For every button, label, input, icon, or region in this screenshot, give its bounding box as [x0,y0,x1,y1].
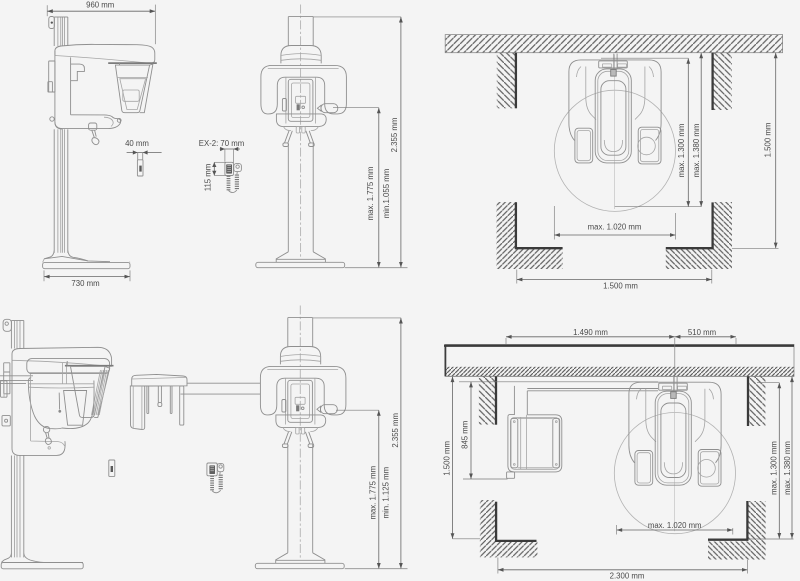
svg-text:max. 1.300 mm: max. 1.300 mm [677,124,686,178]
svg-text:115 mm: 115 mm [203,164,212,192]
svg-text:40 mm: 40 mm [125,139,149,148]
svg-text:max. 1.380 mm: max. 1.380 mm [783,441,792,495]
svg-text:2.355 mm: 2.355 mm [390,118,399,153]
svg-text:1.500 mm: 1.500 mm [442,441,451,476]
svg-text:2.355 mm: 2.355 mm [391,413,400,448]
svg-text:max. 1.020 mm: max. 1.020 mm [588,223,642,232]
svg-text:2.300 mm: 2.300 mm [610,572,645,581]
svg-text:845 mm: 845 mm [461,421,470,449]
svg-text:510 mm: 510 mm [688,328,716,337]
svg-text:max. 1.020 mm: max. 1.020 mm [648,521,702,530]
svg-text:1.500 mm: 1.500 mm [764,123,773,158]
svg-text:min.1.055 mm: min.1.055 mm [382,169,391,218]
svg-text:max. 1.380 mm: max. 1.380 mm [692,124,701,178]
svg-text:EX-2: 70 mm: EX-2: 70 mm [199,139,245,148]
svg-text:max. 1.775 mm: max. 1.775 mm [366,167,375,221]
svg-text:960 mm: 960 mm [86,0,114,9]
svg-text:max. 1.775 mm: max. 1.775 mm [368,466,377,520]
svg-text:1.500 mm: 1.500 mm [603,282,638,291]
svg-text:max. 1.300 mm: max. 1.300 mm [769,441,778,495]
svg-text:min. 1.125 mm: min. 1.125 mm [381,467,390,519]
svg-text:1.490 mm: 1.490 mm [573,328,608,337]
svg-text:730 mm: 730 mm [71,279,99,288]
